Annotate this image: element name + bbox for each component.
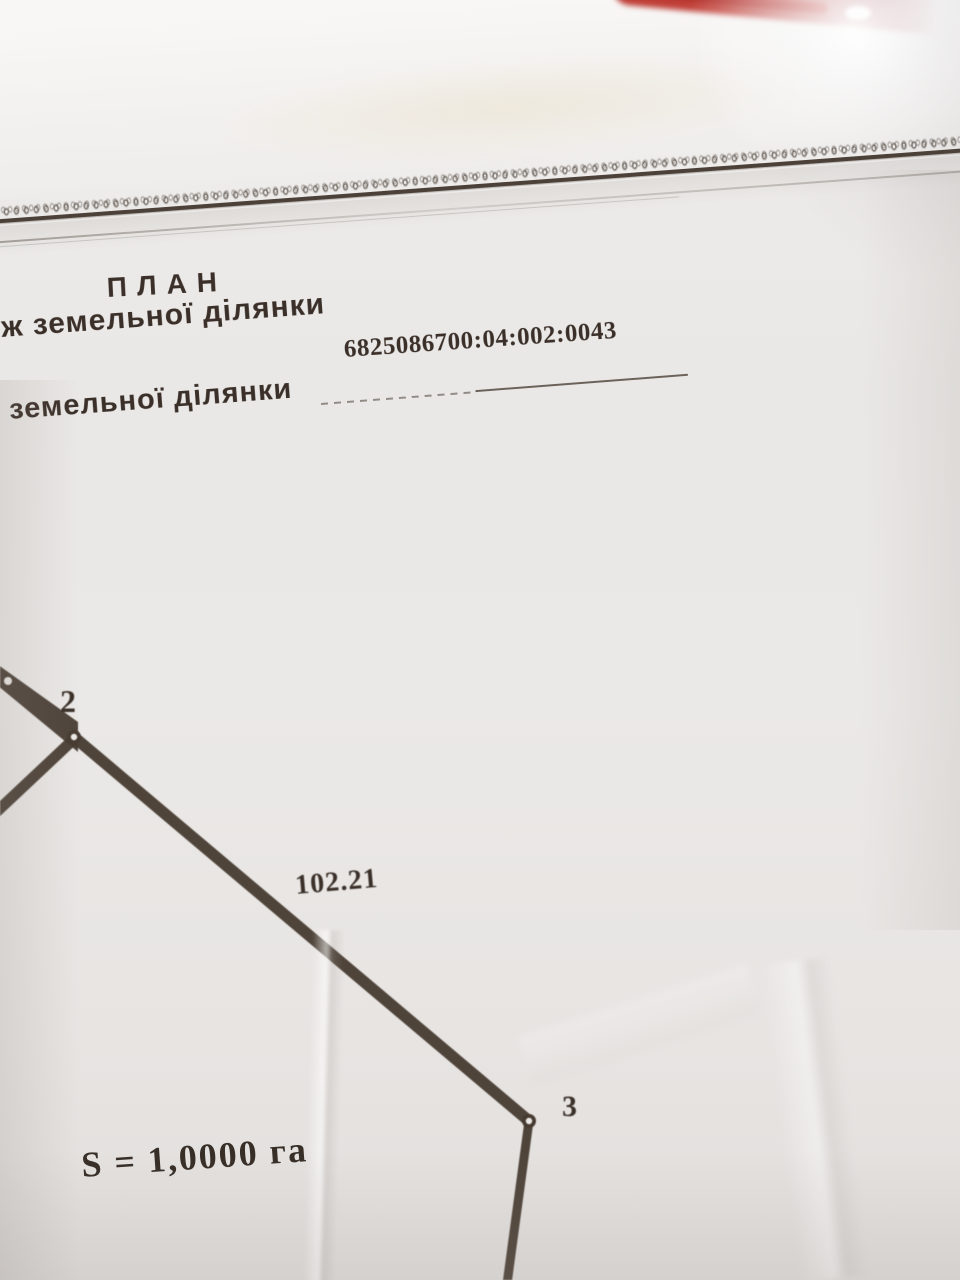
vertex-3-label: 3 [562,1090,577,1123]
photographed-land-plan-document: ПЛАН ж земельної ділянки 6825086700:04:0… [0,0,960,1280]
paper-shadow-right [860,170,960,930]
paper-shadow-bottom [0,1150,960,1280]
vertex-3-marker-hole [526,1118,532,1124]
edge-length-label: 102.21 [294,863,379,901]
paper-shadow-left [0,380,80,1280]
boundary-line-2-3 [74,737,529,1121]
